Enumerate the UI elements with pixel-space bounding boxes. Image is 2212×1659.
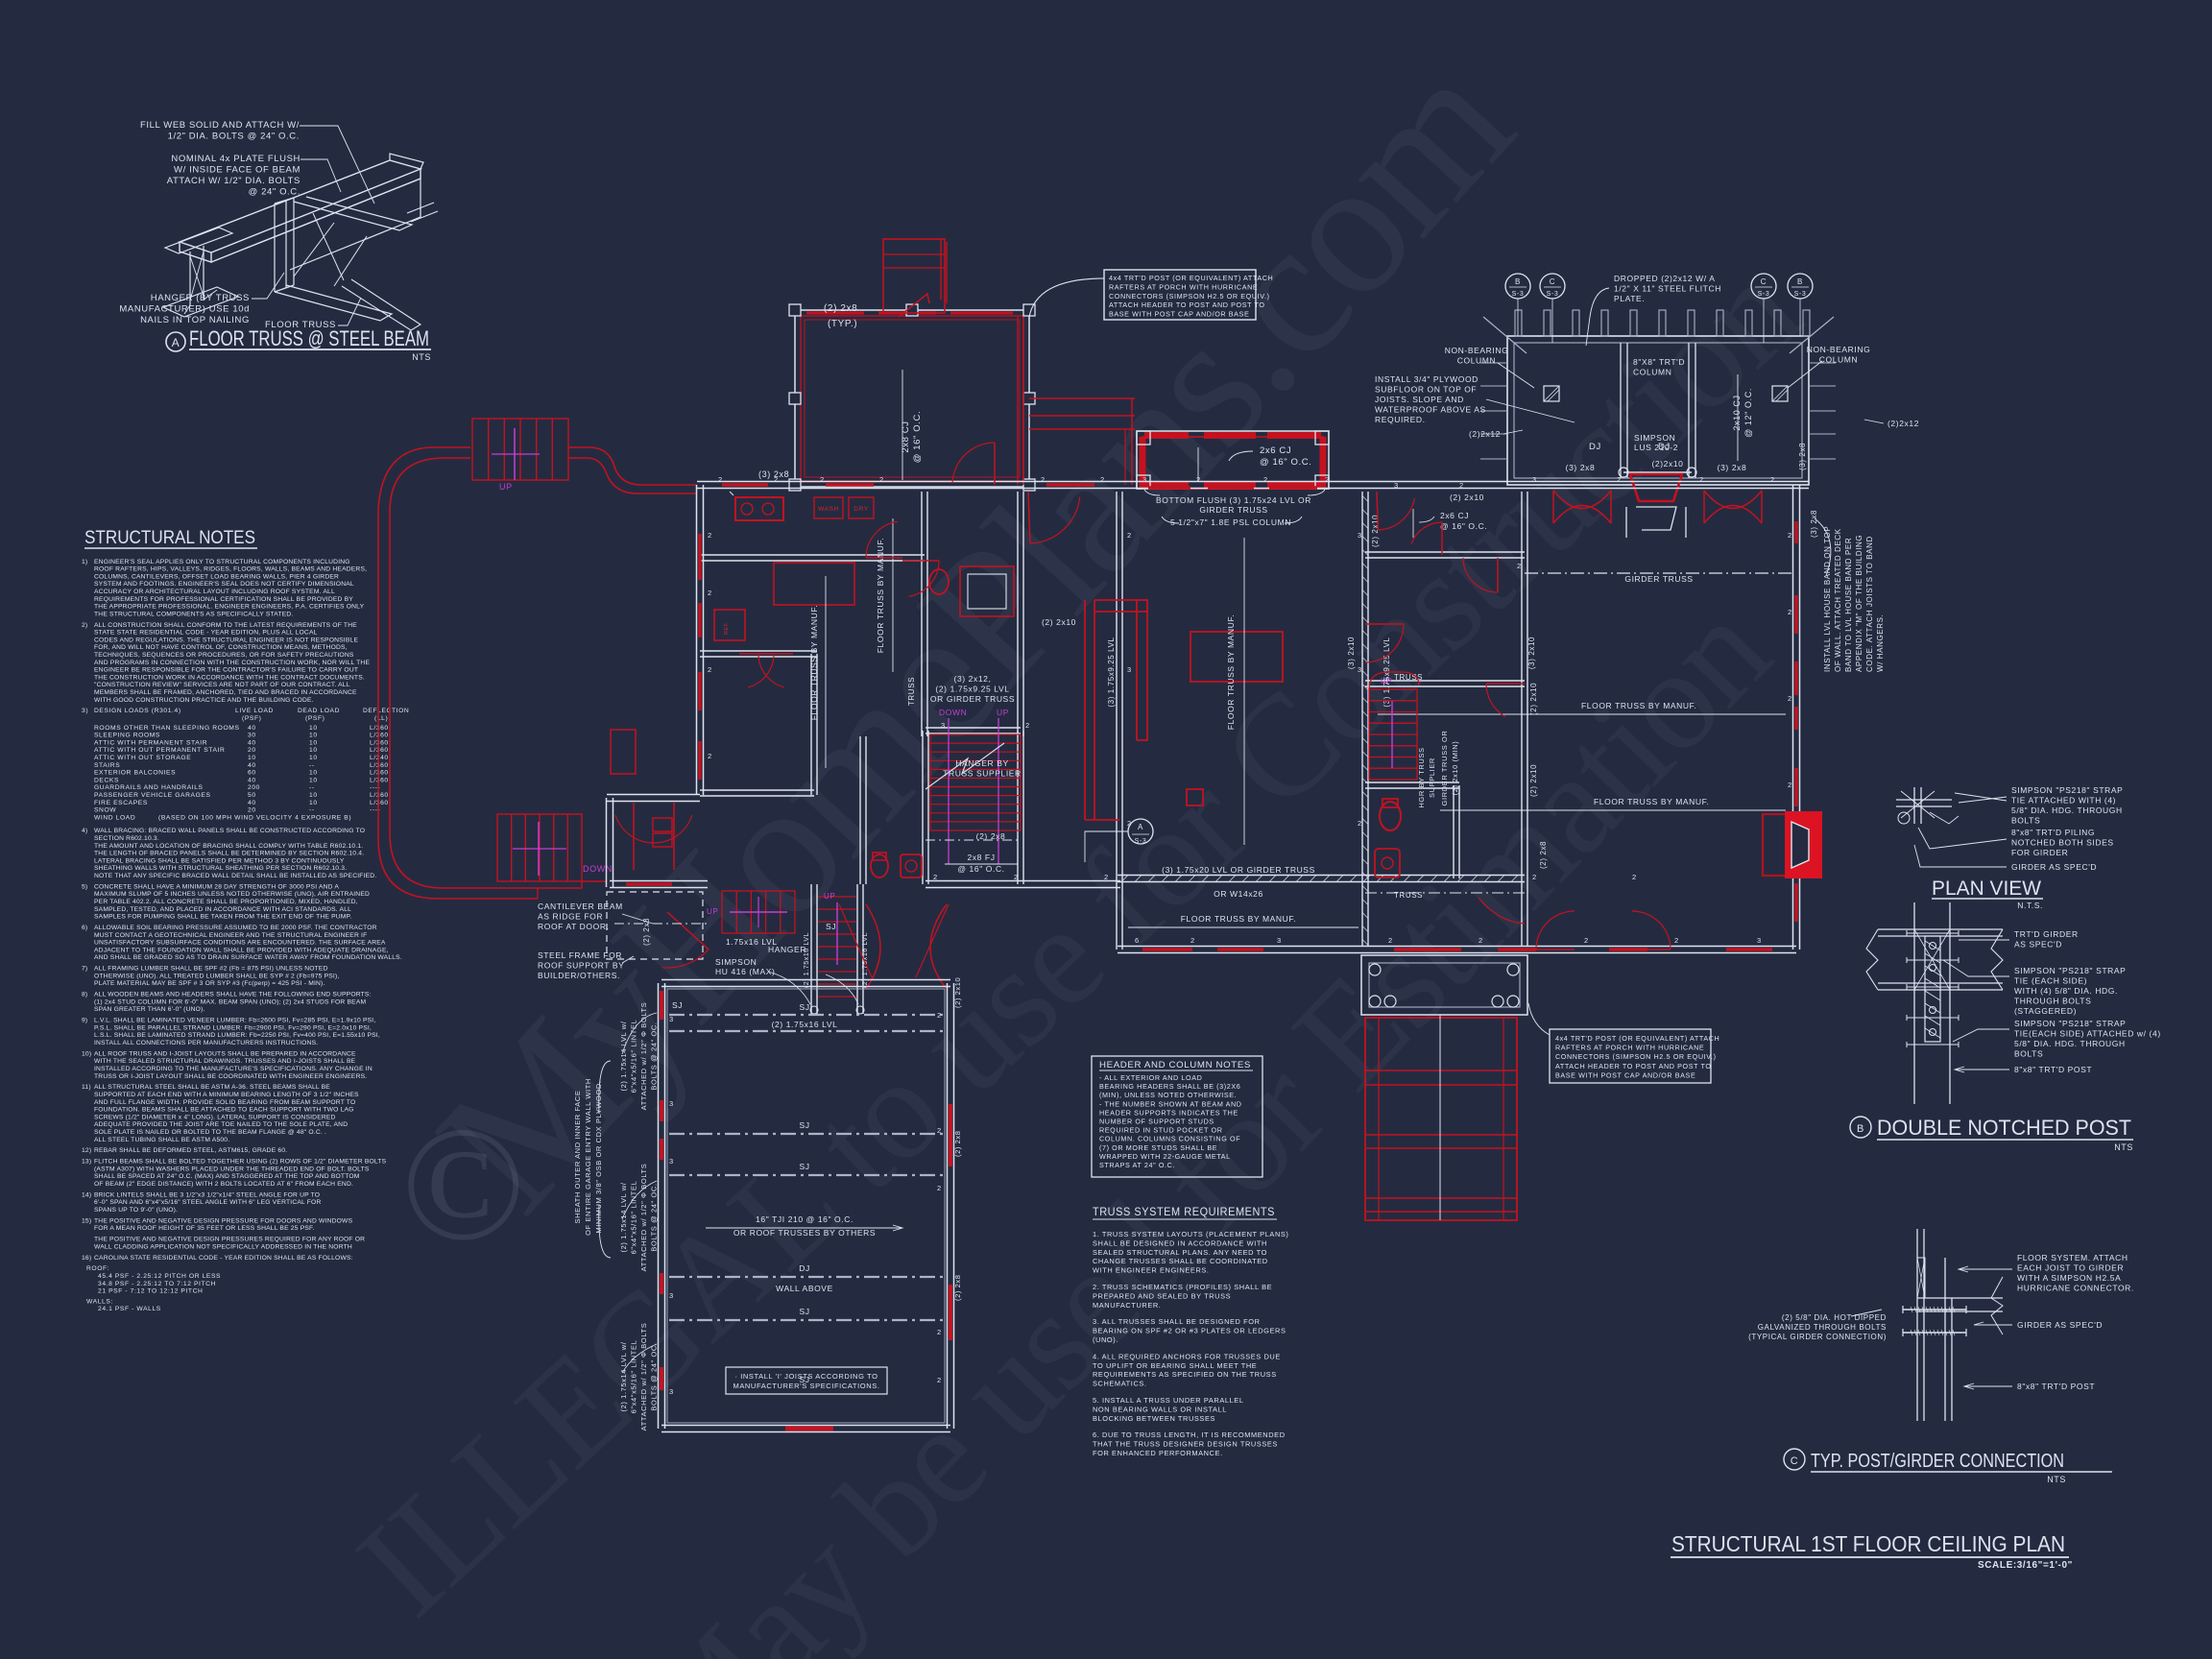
svg-text:DECKS: DECKS — [94, 777, 119, 783]
svg-text:WITH ENGINEER ENGINEERS.: WITH ENGINEER ENGINEERS. — [1093, 1266, 1210, 1275]
svg-text:2: 2 — [1388, 936, 1393, 945]
svg-text:SIMPSON "PS218" STRAP: SIMPSON "PS218" STRAP — [2011, 785, 2123, 795]
svg-text:BEARING ON SPF #2 OR #3 PLATES: BEARING ON SPF #2 OR #3 PLATES OR LEDGER… — [1093, 1327, 1286, 1335]
svg-text:THE STRUCTURAL COMPONENTS AS S: THE STRUCTURAL COMPONENTS AS SPECIFICALL… — [94, 611, 293, 617]
svg-text:DEFLECTION: DEFLECTION — [363, 708, 409, 714]
svg-text:ATTIC WITH PERMANENT STAIR: ATTIC WITH PERMANENT STAIR — [94, 739, 207, 746]
svg-text:30: 30 — [248, 733, 256, 739]
svg-text:40: 40 — [248, 800, 256, 806]
svg-text:NOTCHED BOTH SIDES: NOTCHED BOTH SIDES — [2011, 838, 2114, 848]
svg-text:3: 3 — [669, 1387, 674, 1396]
svg-text:(2) 1.75x14 LVL w/: (2) 1.75x14 LVL w/ — [619, 1182, 628, 1252]
svg-text:9): 9) — [82, 1018, 87, 1024]
svg-text:(2) 1.75x16 LVL: (2) 1.75x16 LVL — [772, 1020, 838, 1029]
svg-text:HANGER (BY TRUSS: HANGER (BY TRUSS — [151, 293, 250, 303]
svg-text:MANUFACTURER) USE 10d: MANUFACTURER) USE 10d — [119, 304, 250, 315]
svg-text:2: 2 — [1263, 475, 1268, 484]
svg-text:ADJACENT TO THE FOUNDATION WAL: ADJACENT TO THE FOUNDATION WALL SHALL BE… — [94, 947, 389, 953]
svg-text:TIE(EACH SIDE) ATTACHED w/ (4): TIE(EACH SIDE) ATTACHED w/ (4) — [2014, 1029, 2161, 1039]
svg-text:EXTERIOR BALCONIES: EXTERIOR BALCONIES — [94, 770, 176, 777]
svg-text:ROOF:: ROOF: — [86, 1265, 109, 1272]
svg-text:DESIGN LOADS (R301.4): DESIGN LOADS (R301.4) — [94, 708, 181, 714]
svg-text:EACH JOIST TO GIRDER: EACH JOIST TO GIRDER — [2017, 1263, 2124, 1273]
svg-text:L.S.L. SHALL BE LAMINATED STR: L.S.L. SHALL BE LAMINATED STRAND LUMBER:… — [94, 1032, 380, 1039]
svg-text:COLUMN: COLUMN — [1633, 368, 1671, 377]
svg-text:20: 20 — [248, 747, 256, 754]
svg-text:PASSENGER VEHICLE GARAGES: PASSENGER VEHICLE GARAGES — [94, 792, 211, 799]
svg-text:FLOOR TRUSS BY MANUF.: FLOOR TRUSS BY MANUF. — [1594, 797, 1709, 806]
svg-text:"CONSTRUCTION REVIEW" SERVICES: "CONSTRUCTION REVIEW" SERVICES ARE NOT P… — [94, 682, 350, 688]
svg-text:NON BEARING WALLS OR INSTALL: NON BEARING WALLS OR INSTALL — [1093, 1405, 1227, 1413]
svg-text:BOTTOM FLUSH (3) 1.75x24 LVL O: BOTTOM FLUSH (3) 1.75x24 LVL OR — [1156, 495, 1311, 505]
svg-text:6"x4"x5/16" LINTEL: 6"x4"x5/16" LINTEL — [630, 1340, 638, 1414]
svg-text:THE POSITIVE AND NEGATIVE DESI: THE POSITIVE AND NEGATIVE DESIGN PRESSUR… — [94, 1237, 365, 1243]
svg-text:2x8 FJ: 2x8 FJ — [967, 853, 995, 862]
svg-text:(2) 2x8: (2) 2x8 — [953, 1130, 962, 1157]
svg-text:TRUSS SUPPLIER: TRUSS SUPPLIER — [943, 769, 1022, 779]
svg-text:TYP. POST/GIRDER CONNECTION: TYP. POST/GIRDER CONNECTION — [1811, 1451, 2064, 1472]
svg-text:FIRE ESCAPES: FIRE ESCAPES — [94, 800, 148, 806]
svg-text:20: 20 — [248, 807, 256, 814]
svg-text:2: 2 — [1517, 562, 1522, 570]
svg-text:2: 2 — [1104, 873, 1109, 881]
svg-text:3: 3 — [669, 1099, 674, 1108]
svg-text:PER TABLE 402.2. ALL CONCRETE: PER TABLE 402.2. ALL CONCRETE SHALL BE P… — [94, 899, 358, 905]
svg-text:AND PROGRAMS IN CONNECTION WIT: AND PROGRAMS IN CONNECTION WITH THE CONS… — [94, 660, 370, 666]
svg-text:(3) 2x8: (3) 2x8 — [1798, 443, 1807, 470]
svg-text:8): 8) — [82, 992, 87, 998]
svg-text:C: C — [1550, 277, 1555, 286]
svg-text:STRUCTURAL 1ST FLOOR CEILING P: STRUCTURAL 1ST FLOOR CEILING PLAN — [1671, 1531, 2065, 1556]
svg-text:ALL WOODEN BEAMS AND HEADERS S: ALL WOODEN BEAMS AND HEADERS SHALL HAVE … — [94, 992, 372, 998]
svg-text:HANGER BY: HANGER BY — [955, 758, 1008, 768]
svg-text:NON-BEARING: NON-BEARING — [1445, 346, 1509, 355]
svg-text:2: 2 — [1325, 475, 1330, 484]
svg-text:FOR A MEAN ROOF HEIGHT OF 35 F: FOR A MEAN ROOF HEIGHT OF 35 FEET OR LES… — [94, 1225, 315, 1232]
svg-text:3: 3 — [669, 1015, 674, 1023]
svg-text:L/240: L/240 — [370, 755, 389, 761]
svg-text:AS SPEC'D: AS SPEC'D — [2014, 940, 2062, 950]
svg-text:BRICK LINTELS SHALL BE 3 1/2"x: BRICK LINTELS SHALL BE 3 1/2"x3 1/2"x1/4… — [94, 1191, 320, 1198]
svg-text:C: C — [1791, 1455, 1799, 1467]
svg-text:L/360: L/360 — [370, 762, 389, 769]
svg-text:GALVANIZED THROUGH BOLTS: GALVANIZED THROUGH BOLTS — [1758, 1323, 1887, 1332]
svg-text:SJ: SJ — [799, 1162, 809, 1171]
svg-text:CHANGE TRUSSES SHALL BE COORDI: CHANGE TRUSSES SHALL BE COORDINATED — [1093, 1257, 1268, 1265]
svg-text:CONCRETE SHALL HAVE A MINIMUM: CONCRETE SHALL HAVE A MINIMUM 28 DAY STR… — [94, 883, 339, 890]
svg-text:DRY: DRY — [854, 506, 868, 513]
svg-text:S-3: S-3 — [1135, 838, 1147, 845]
svg-text:COLUMN: COLUMN — [1819, 355, 1858, 365]
svg-text:6"x4"x5/16" LINTEL: 6"x4"x5/16" LINTEL — [630, 1181, 638, 1255]
svg-text:24.1 PSF - WALLS: 24.1 PSF - WALLS — [98, 1306, 161, 1312]
svg-text:10: 10 — [309, 792, 318, 799]
svg-text:ATTIC WITH OUT STORAGE: ATTIC WITH OUT STORAGE — [94, 755, 191, 761]
svg-text:SLEEPING ROOMS: SLEEPING ROOMS — [94, 733, 160, 739]
svg-text:5): 5) — [82, 883, 87, 890]
svg-text:INSTALL 3/4" PLYWOOD: INSTALL 3/4" PLYWOOD — [1375, 374, 1479, 384]
svg-text:13): 13) — [82, 1159, 91, 1166]
svg-text:NOMINAL 4x PLATE FLUSH: NOMINAL 4x PLATE FLUSH — [171, 154, 301, 164]
svg-text:(2) 1.75x9.25 LVL: (2) 1.75x9.25 LVL — [935, 685, 1009, 694]
svg-text:HEADER SUPPORTS INDICATES THE: HEADER SUPPORTS INDICATES THE — [1099, 1108, 1238, 1117]
svg-text:1): 1) — [82, 559, 87, 565]
svg-text:(2) 2x8: (2) 2x8 — [642, 918, 651, 946]
svg-text:ATTIC WITH OUT PERMANENT STAIR: ATTIC WITH OUT PERMANENT STAIR — [94, 747, 225, 754]
svg-text:2: 2 — [1770, 475, 1775, 484]
svg-text:SIMPSON "PS218" STRAP: SIMPSON "PS218" STRAP — [2014, 1019, 2126, 1028]
svg-text:SUPPORTED AT EACH END WITH A M: SUPPORTED AT EACH END WITH A MINIMUM BEA… — [94, 1092, 359, 1098]
svg-text:WASH: WASH — [818, 506, 839, 513]
svg-text:· INSTALL 'I' JOISTS ACCORDIN: · INSTALL 'I' JOISTS ACCORDING TO — [734, 1372, 878, 1381]
svg-text:S-3: S-3 — [1512, 291, 1525, 298]
svg-text:OF ENTIRE GARAGE ENTRY WALL WI: OF ENTIRE GARAGE ENTRY WALL WITH — [584, 1078, 592, 1236]
svg-text:6. DUE TO TRUSS LENGTH, IT IS: 6. DUE TO TRUSS LENGTH, IT IS RECOMMENDE… — [1093, 1431, 1286, 1439]
svg-text:34.8 PSF - 2.25:12 TO 7:12 PIT: 34.8 PSF - 2.25:12 TO 7:12 PITCH — [98, 1281, 216, 1287]
svg-text:SHEATH OUTER AND INNER FACE: SHEATH OUTER AND INNER FACE — [573, 1091, 582, 1224]
svg-text:C: C — [1761, 277, 1767, 286]
svg-text:PLATE MATERIAL MAY BE SPF # 3: PLATE MATERIAL MAY BE SPF # 3 OR SYP #3 … — [94, 980, 325, 987]
svg-text:2: 2 — [933, 873, 938, 881]
svg-text:FILL WEB SOLID AND ATTACH W/: FILL WEB SOLID AND ATTACH W/ — [140, 120, 300, 131]
svg-text:5/8" DIA. HDG. THROUGH: 5/8" DIA. HDG. THROUGH — [2011, 805, 2123, 815]
svg-text:FLOOR TRUSS BY MANUF.: FLOOR TRUSS BY MANUF. — [1181, 914, 1296, 924]
svg-text:BAND TO LVL HOUSE BAND PER: BAND TO LVL HOUSE BAND PER — [1844, 538, 1853, 672]
svg-text:UP: UP — [1381, 677, 1392, 685]
svg-text:WITH A SIMPSON H2.5A: WITH A SIMPSON H2.5A — [2017, 1273, 2121, 1283]
svg-text:3: 3 — [1358, 531, 1362, 540]
svg-text:REBAR SHALL BE DEFORMED STEEL,: REBAR SHALL BE DEFORMED STEEL, ASTM615, … — [94, 1147, 287, 1154]
svg-text:3: 3 — [1358, 665, 1362, 674]
svg-text:10: 10 — [309, 747, 318, 754]
svg-text:SAMPLES FOR PUMPING SHALL BE T: SAMPLES FOR PUMPING SHALL BE TAKEN FROM … — [94, 914, 351, 921]
svg-text:(2) 2x8: (2) 2x8 — [953, 1274, 962, 1301]
svg-text:SJ: SJ — [799, 1307, 809, 1316]
svg-text:FLOOR TRUSS @ STEEL BEAM: FLOOR TRUSS @ STEEL BEAM — [189, 326, 429, 350]
svg-text:ALL STRUCTURAL STEEL SHALL BE: ALL STRUCTURAL STEEL SHALL BE ASTM A-36.… — [94, 1084, 330, 1091]
svg-text:B: B — [1515, 277, 1521, 286]
svg-text:A: A — [172, 336, 180, 349]
svg-text:2: 2 — [1127, 531, 1132, 540]
svg-text:2: 2 — [820, 475, 825, 484]
svg-text:ATTACHED w/ 1/2" Φ BOLTS: ATTACHED w/ 1/2" Φ BOLTS — [639, 1002, 648, 1111]
svg-text:21 PSF - 7:12 TO 12:12 PITCH: 21 PSF - 7:12 TO 12:12 PITCH — [98, 1288, 203, 1295]
svg-text:14): 14) — [82, 1191, 91, 1198]
svg-text:2: 2 — [718, 475, 723, 484]
svg-text:2: 2 — [1196, 475, 1201, 484]
svg-text:STRAPS AT 24" O.C.: STRAPS AT 24" O.C. — [1099, 1161, 1175, 1169]
svg-text:ENGINEER'S SEAL APPLIES ONLY T: ENGINEER'S SEAL APPLIES ONLY TO STRUCTUR… — [94, 559, 350, 565]
svg-text:2: 2 — [1459, 481, 1464, 490]
svg-text:UP: UP — [707, 907, 718, 916]
svg-text:8"x8" TRT'D PILING: 8"x8" TRT'D PILING — [2011, 828, 2095, 837]
svg-text:2: 2 — [774, 475, 779, 484]
svg-text:(UNO).: (UNO). — [1093, 1335, 1118, 1344]
svg-text:THE APPROPRIATE PROFESSIONAL.: THE APPROPRIATE PROFESSIONAL. ENGINEER E… — [94, 604, 365, 611]
svg-text:(1) 2x4 STUD COLUMN FOR 6'-0": (1) 2x4 STUD COLUMN FOR 6'-0" MAX. BEAM … — [94, 998, 366, 1005]
svg-text:THE AMOUNT AND LOCATION OF BRA: THE AMOUNT AND LOCATION OF BRACING SHALL… — [94, 843, 363, 850]
svg-text:16" TJI 210 @ 16" O.C.: 16" TJI 210 @ 16" O.C. — [756, 1214, 854, 1224]
svg-text:REF.: REF. — [724, 621, 730, 635]
svg-text:UP: UP — [499, 482, 513, 492]
svg-text:TRT'D GIRDER: TRT'D GIRDER — [2014, 929, 2079, 939]
svg-text:AS RIDGE FOR: AS RIDGE FOR — [538, 912, 603, 922]
svg-text:BOLTS @ 24" OC.: BOLTS @ 24" OC. — [650, 1022, 659, 1090]
svg-text:HGR BY TRUSS: HGR BY TRUSS — [1417, 747, 1426, 807]
svg-text:SHALL BE DESIGNED IN ACCORDANC: SHALL BE DESIGNED IN ACCORDANCE WITH — [1093, 1238, 1267, 1247]
svg-text:2: 2 — [1788, 608, 1792, 616]
svg-text:6: 6 — [1135, 936, 1140, 945]
svg-text:(LL): (LL) — [374, 715, 388, 722]
svg-text:(2) 2x10 (MIN): (2) 2x10 (MIN) — [1451, 741, 1459, 796]
svg-text:- ALL EXTERIOR AND LOAD: - ALL EXTERIOR AND LOAD — [1099, 1073, 1202, 1082]
svg-text:@ 16" O.C.: @ 16" O.C. — [1260, 457, 1311, 468]
svg-text:PLAN VIEW: PLAN VIEW — [1932, 878, 2041, 900]
svg-text:GUARDRAILS AND HANDRAILS: GUARDRAILS AND HANDRAILS — [94, 784, 204, 791]
svg-text:ROOMS OTHER THAN SLEEPING ROOM: ROOMS OTHER THAN SLEEPING ROOMS — [94, 725, 240, 732]
svg-text:2. TRUSS SCHEMATICS (PROFILES): 2. TRUSS SCHEMATICS (PROFILES) SHALL BE — [1093, 1283, 1272, 1291]
svg-text:SPAN GREATER THAN 6'-0" (UNO).: SPAN GREATER THAN 6'-0" (UNO). — [94, 1006, 205, 1013]
svg-text:@ 24" O.C.: @ 24" O.C. — [249, 187, 301, 198]
svg-text:10: 10 — [309, 770, 318, 777]
svg-text:BOLTS @ 24" OC.: BOLTS @ 24" OC. — [650, 1342, 659, 1410]
svg-text:5. INSTALL A TRUSS UNDER PARAL: 5. INSTALL A TRUSS UNDER PARALLEL — [1093, 1396, 1244, 1405]
svg-text:REQUIREMENTS AS SPECIFIED ON T: REQUIREMENTS AS SPECIFIED ON THE TRUSS — [1093, 1370, 1277, 1379]
svg-text:6'-0" SPAN AND 6"x4"x5/16" STE: 6'-0" SPAN AND 6"x4"x5/16" STEEL ANGLE W… — [94, 1199, 321, 1206]
svg-text:1/2" DIA. BOLTS @ 24" O.C.: 1/2" DIA. BOLTS @ 24" O.C. — [168, 132, 300, 142]
svg-text:ACCURACY OR ARCHITECTURAL LAYO: ACCURACY OR ARCHITECTURAL LAYOUT INCLUDI… — [94, 589, 335, 595]
svg-text:8"x8" TRT'D POST: 8"x8" TRT'D POST — [2014, 1065, 2092, 1074]
svg-text:4x4 TRT'D POST (OR EQUIVALENT): 4x4 TRT'D POST (OR EQUIVALENT) ATTACH — [1109, 274, 1273, 282]
svg-text:4. ALL REQUIRED ANCHORS FOR TR: 4. ALL REQUIRED ANCHORS FOR TRUSSES DUE — [1093, 1352, 1281, 1360]
svg-text:@ 16" O.C.: @ 16" O.C. — [957, 864, 1004, 874]
svg-text:GIRDER TRUSS: GIRDER TRUSS — [1624, 574, 1693, 584]
svg-text:3: 3 — [669, 1291, 674, 1300]
svg-text:WALL ABOVE: WALL ABOVE — [776, 1284, 833, 1293]
svg-text:1/2" X 11" STEEL FLITCH: 1/2" X 11" STEEL FLITCH — [1614, 284, 1721, 294]
svg-text:JOISTS. SLOPE AND: JOISTS. SLOPE AND — [1375, 395, 1464, 404]
svg-text:DROPPED (2)2x12 W/ A: DROPPED (2)2x12 W/ A — [1614, 274, 1716, 283]
svg-text:2: 2 — [1788, 781, 1792, 789]
svg-text:L/360: L/360 — [370, 725, 389, 732]
svg-text:COLUMN: COLUMN — [1457, 356, 1496, 366]
svg-text:3): 3) — [82, 708, 88, 714]
svg-text:DJ: DJ — [799, 1263, 810, 1273]
svg-text:2: 2 — [1479, 936, 1483, 945]
svg-text:2: 2 — [1788, 531, 1792, 540]
svg-text:MEMBERS SHALL BE FRAMED, ANCHO: MEMBERS SHALL BE FRAMED, ANCHORED, TIED … — [94, 689, 357, 696]
svg-text:FLOOR TRUSS BY MANUF.: FLOOR TRUSS BY MANUF. — [809, 605, 819, 720]
svg-text:ATTACH HEADER TO POST AND POST: ATTACH HEADER TO POST AND POST TO — [1109, 301, 1265, 309]
svg-text:(TYP.): (TYP.) — [828, 319, 857, 329]
svg-text:ALL CONSTRUCTION SHALL CONFORM: ALL CONSTRUCTION SHALL CONFORM TO THE LA… — [94, 622, 357, 629]
svg-text:PREPARED AND SEALED BY TRUSS: PREPARED AND SEALED BY TRUSS — [1093, 1291, 1231, 1300]
svg-text:W/ HANGERS.: W/ HANGERS. — [1876, 614, 1885, 672]
svg-text:ROOF RAFTERS, HIPS, VALLEYS, R: ROOF RAFTERS, HIPS, VALLEYS, RIDGES, FLO… — [94, 566, 367, 573]
svg-text:2: 2 — [708, 752, 712, 760]
svg-text:HURRICANE CONNECTOR.: HURRICANE CONNECTOR. — [2017, 1284, 2134, 1293]
svg-text:THROUGH BOLTS: THROUGH BOLTS — [2014, 997, 2091, 1006]
svg-text:2: 2 — [879, 475, 884, 484]
svg-text:(2) 2x8: (2) 2x8 — [1539, 841, 1548, 869]
svg-text:B: B — [1857, 1123, 1864, 1135]
svg-text:15): 15) — [82, 1217, 91, 1224]
svg-text:--: -- — [309, 807, 315, 814]
svg-text:SNOW: SNOW — [94, 807, 116, 814]
svg-text:NUMBER OF SUPPORT STUDS: NUMBER OF SUPPORT STUDS — [1099, 1118, 1214, 1126]
svg-text:MANUFACTURER.: MANUFACTURER. — [1093, 1301, 1161, 1310]
svg-text:(2)2x10: (2)2x10 — [1651, 459, 1683, 469]
svg-text:SAMPLED, TESTED, AND PLACED IN: SAMPLED, TESTED, AND PLACED IN ACCORDANC… — [94, 906, 351, 913]
svg-text:HEADER AND COLUMN NOTES: HEADER AND COLUMN NOTES — [1099, 1060, 1251, 1070]
svg-text:(7) OR MORE STUDS SHALL BE: (7) OR MORE STUDS SHALL BE — [1099, 1143, 1217, 1152]
svg-text:INSTALL ALL CONNECTIONS PER MA: INSTALL ALL CONNECTIONS PER MANUFACTURER… — [94, 1040, 318, 1046]
svg-text:SJ: SJ — [799, 1120, 809, 1130]
svg-text:A: A — [1138, 823, 1143, 831]
svg-text:10: 10 — [309, 800, 318, 806]
svg-text:@ 12" O.C.: @ 12" O.C. — [1743, 388, 1753, 438]
svg-text:REQUIREMENTS FOR PROFESSIONAL: REQUIREMENTS FOR PROFESSIONAL CERTIFICAT… — [94, 596, 353, 603]
svg-text:NOTE THAT ANY SPECIFIC BRACED: NOTE THAT ANY SPECIFIC BRACED WALL DETAI… — [94, 873, 376, 879]
svg-text:OTHERWISE (UNO). ALL TREATED L: OTHERWISE (UNO). ALL TREATED LUMBER SHAL… — [94, 973, 339, 979]
svg-text:2: 2 — [937, 1328, 942, 1336]
svg-text:10): 10) — [82, 1050, 91, 1057]
svg-text:SIMPSON: SIMPSON — [715, 957, 757, 967]
svg-text:UNSATISFACTORY SUBSURFACE COND: UNSATISFACTORY SUBSURFACE CONDITIONS ARE… — [94, 940, 386, 947]
svg-text:FLOOR SYSTEM. ATTACH: FLOOR SYSTEM. ATTACH — [2017, 1253, 2128, 1262]
svg-text:ROOF AT DOOR.: ROOF AT DOOR. — [538, 922, 610, 931]
svg-text:LUS 210-2: LUS 210-2 — [1634, 443, 1678, 452]
svg-text:NTS: NTS — [2114, 1142, 2133, 1152]
svg-text:11): 11) — [82, 1084, 91, 1091]
svg-text:5 1/2"x7" 1.8E PSL COLUMN: 5 1/2"x7" 1.8E PSL COLUMN — [1170, 517, 1291, 527]
svg-text:RAFTERS AT PORCH WITH HURRICAN: RAFTERS AT PORCH WITH HURRICANE — [1555, 1044, 1704, 1052]
svg-text:SHEATHING WALLS WITH STRUCTURA: SHEATHING WALLS WITH STRUCTURAL SHEATHIN… — [94, 865, 347, 872]
svg-text:2: 2 — [1358, 819, 1362, 828]
svg-text:ATTACHED w/ 1/2" Φ BOLTS: ATTACHED w/ 1/2" Φ BOLTS — [639, 1164, 648, 1272]
svg-text:BOLTS @ 24" OC.: BOLTS @ 24" OC. — [650, 1183, 659, 1251]
svg-text:6"x4"x5/16" LINTEL: 6"x4"x5/16" LINTEL — [630, 1020, 638, 1094]
svg-text:SCHEMATICS.: SCHEMATICS. — [1093, 1380, 1147, 1388]
svg-text:2: 2 — [1190, 936, 1195, 945]
svg-text:STAIRS: STAIRS — [94, 762, 120, 769]
svg-text:2: 2 — [1014, 873, 1019, 881]
svg-text:CAROLINA STATE RESIDENTIAL COD: CAROLINA STATE RESIDENTIAL CODE - YEAR E… — [94, 1255, 353, 1262]
svg-text:LIVE LOAD: LIVE LOAD — [235, 708, 274, 714]
svg-text:BLOCKING BETWEEN TRUSSES: BLOCKING BETWEEN TRUSSES — [1093, 1414, 1215, 1423]
svg-text:ADEQUATE PROVIDED THE JOIST AR: ADEQUATE PROVIDED THE JOIST ARE TOE NAIL… — [94, 1121, 348, 1128]
svg-text:2: 2 — [1788, 694, 1792, 703]
svg-text:2x10 CJ: 2x10 CJ — [1732, 395, 1742, 430]
svg-text:(STAGGERED): (STAGGERED) — [2014, 1006, 2077, 1016]
svg-text:2: 2 — [1100, 475, 1105, 484]
svg-text:THE CONSTRUCTION WORK IN ACCOR: THE CONSTRUCTION WORK IN ACCORDANCE WITH… — [94, 674, 365, 681]
svg-text:(2) 1.75x14 LVL w/: (2) 1.75x14 LVL w/ — [619, 1021, 628, 1091]
svg-text:(3) 1.75x9.25 LVL: (3) 1.75x9.25 LVL — [1107, 637, 1116, 707]
svg-text:N.T.S.: N.T.S. — [2017, 901, 2043, 910]
svg-text:WRAPPED WITH 22-GAUGE METAL: WRAPPED WITH 22-GAUGE METAL — [1099, 1152, 1231, 1161]
svg-text:S-3: S-3 — [1794, 291, 1807, 298]
svg-text:GIRDER AS SPEC'D: GIRDER AS SPEC'D — [2011, 862, 2097, 872]
svg-text:40: 40 — [248, 739, 256, 746]
svg-text:L/360: L/360 — [370, 770, 389, 777]
svg-text:BEARING HEADERS SHALL BE (3)2X: BEARING HEADERS SHALL BE (3)2X6 — [1099, 1082, 1240, 1091]
svg-text:COLUMNS, CANTILEVERS, OFFSET L: COLUMNS, CANTILEVERS, OFFSET LOAD BEARIN… — [94, 573, 339, 580]
svg-text:RAFTERS AT PORCH WITH HURRICAN: RAFTERS AT PORCH WITH HURRICANE — [1109, 282, 1258, 291]
svg-text:STATE STATE RESIDENTIAL CODE -: STATE STATE RESIDENTIAL CODE - YEAR EDIT… — [94, 630, 318, 637]
svg-text:2: 2 — [1041, 475, 1046, 484]
svg-text:WALL BRACING: BRACED WALL PAN: WALL BRACING: BRACED WALL PANELS SHALL B… — [94, 828, 365, 834]
svg-text:FOUNDATION. BEAMS SHALL BE AT: FOUNDATION. BEAMS SHALL BE ATTACHED TO E… — [94, 1107, 354, 1114]
svg-text:(TYPICAL GIRDER CONNECTION): (TYPICAL GIRDER CONNECTION) — [1748, 1333, 1887, 1341]
svg-text:ROOF SUPPORT BY: ROOF SUPPORT BY — [538, 961, 624, 971]
svg-text:3: 3 — [941, 721, 946, 730]
svg-text:3: 3 — [1277, 936, 1282, 945]
svg-text:THE POSITIVE AND NEGATIVE DESI: THE POSITIVE AND NEGATIVE DESIGN PRESSUR… — [94, 1217, 353, 1224]
svg-text:3: 3 — [1757, 936, 1762, 945]
svg-text:NAILS IN TOP NAILING: NAILS IN TOP NAILING — [140, 315, 250, 325]
svg-text:L.V.L. SHALL BE LAMINATED VEN: L.V.L. SHALL BE LAMINATED VENEER LUMBER:… — [94, 1018, 375, 1024]
svg-text:NTS: NTS — [2047, 1475, 2066, 1484]
svg-text:OF WALL. ATTACH TREATED DECK: OF WALL. ATTACH TREATED DECK — [1834, 528, 1842, 672]
svg-text:10: 10 — [309, 739, 318, 746]
svg-text:(ASTM A307) WITH WASHERS PLACE: (ASTM A307) WITH WASHERS PLACED UNDER TH… — [94, 1166, 370, 1172]
svg-text:SYSTEM AND FOOTINGS. ENGINEER: SYSTEM AND FOOTINGS. ENGINEER'S SEAL DOE… — [94, 581, 354, 588]
svg-text:SUPPLIER: SUPPLIER — [1428, 757, 1436, 798]
svg-text:2: 2 — [937, 1184, 942, 1192]
svg-text:3: 3 — [1394, 481, 1399, 490]
svg-text:WALL CLADDING APPLICATION NOT: WALL CLADDING APPLICATION NOT SPECIFICAL… — [94, 1243, 352, 1250]
svg-text:8"x8" TRT'D POST: 8"x8" TRT'D POST — [2017, 1382, 2095, 1391]
svg-text:(3) 2x8: (3) 2x8 — [1718, 463, 1747, 472]
svg-text:FLOOR TRUSS BY MANUF.: FLOOR TRUSS BY MANUF. — [1226, 614, 1236, 730]
svg-text:(2) 2x10: (2) 2x10 — [1450, 493, 1484, 502]
svg-text:WITH (4) 5/8" DIA. HDG.: WITH (4) 5/8" DIA. HDG. — [2014, 986, 2118, 996]
svg-text:SIMPSON "PS218" STRAP: SIMPSON "PS218" STRAP — [2014, 966, 2126, 975]
svg-text:2: 2 — [1674, 936, 1679, 945]
svg-text:REQUIRED.: REQUIRED. — [1375, 415, 1426, 424]
svg-text:DOWN: DOWN — [583, 864, 613, 874]
svg-text:--: -- — [309, 784, 315, 791]
svg-text:ALL ROOF TRUSS AND I-JOIST LAY: ALL ROOF TRUSS AND I-JOIST LAYOUTS SHALL… — [94, 1050, 356, 1057]
svg-text:DJ: DJ — [1589, 442, 1601, 452]
svg-text:STRUCTURAL NOTES: STRUCTURAL NOTES — [84, 528, 255, 548]
svg-text:4): 4) — [82, 828, 87, 834]
svg-text:BUILDER/OTHERS.: BUILDER/OTHERS. — [538, 971, 620, 980]
svg-text:2x6 CJ: 2x6 CJ — [1260, 445, 1291, 456]
svg-text:COLUMN. COLUMNS CONSISTING OF: COLUMN. COLUMNS CONSISTING OF — [1099, 1135, 1240, 1143]
svg-text:SPANS UP TO 9'-0" (UNO).: SPANS UP TO 9'-0" (UNO). — [94, 1207, 178, 1214]
svg-text:TRUSS OR I-JOIST LAYOUT SHALL: TRUSS OR I-JOIST LAYOUT SHALL BE COORDIN… — [94, 1073, 367, 1080]
svg-text:8"X8" TRT'D: 8"X8" TRT'D — [1633, 357, 1685, 367]
svg-text:40: 40 — [248, 777, 256, 783]
svg-text:SCALE:3/16"=1'-0": SCALE:3/16"=1'-0" — [1978, 1560, 2073, 1571]
svg-text:WATERPROOF ABOVE AS: WATERPROOF ABOVE AS — [1375, 405, 1486, 415]
svg-text:(BASED ON 100 MPH WIND VELOCIT: (BASED ON 100 MPH WIND VELOCITY 4 EXPOSU… — [158, 814, 351, 821]
svg-text:AND FULL FLANGE WIDTH. PROVIDE: AND FULL FLANGE WIDTH. PROVIDE SOLID BEA… — [94, 1099, 355, 1106]
svg-text:MANUFACTURER'S SPECIFICATIONS.: MANUFACTURER'S SPECIFICATIONS. — [733, 1382, 879, 1390]
svg-text:SJ: SJ — [672, 1000, 683, 1010]
svg-text:REQUIRED IN STUD POCKET OR: REQUIRED IN STUD POCKET OR — [1099, 1126, 1222, 1135]
svg-text:200: 200 — [248, 784, 260, 791]
svg-text:12): 12) — [82, 1147, 91, 1154]
svg-text:L/360: L/360 — [370, 747, 389, 754]
svg-text:(2) 2x10: (2) 2x10 — [1529, 764, 1538, 797]
svg-text:10: 10 — [309, 755, 318, 761]
svg-text:OR W14x26: OR W14x26 — [1214, 889, 1263, 899]
svg-text:45.4 PSF - 2.25:12 PITCH OR LE: 45.4 PSF - 2.25:12 PITCH OR LESS — [98, 1273, 221, 1280]
svg-text:2: 2 — [1532, 873, 1537, 881]
